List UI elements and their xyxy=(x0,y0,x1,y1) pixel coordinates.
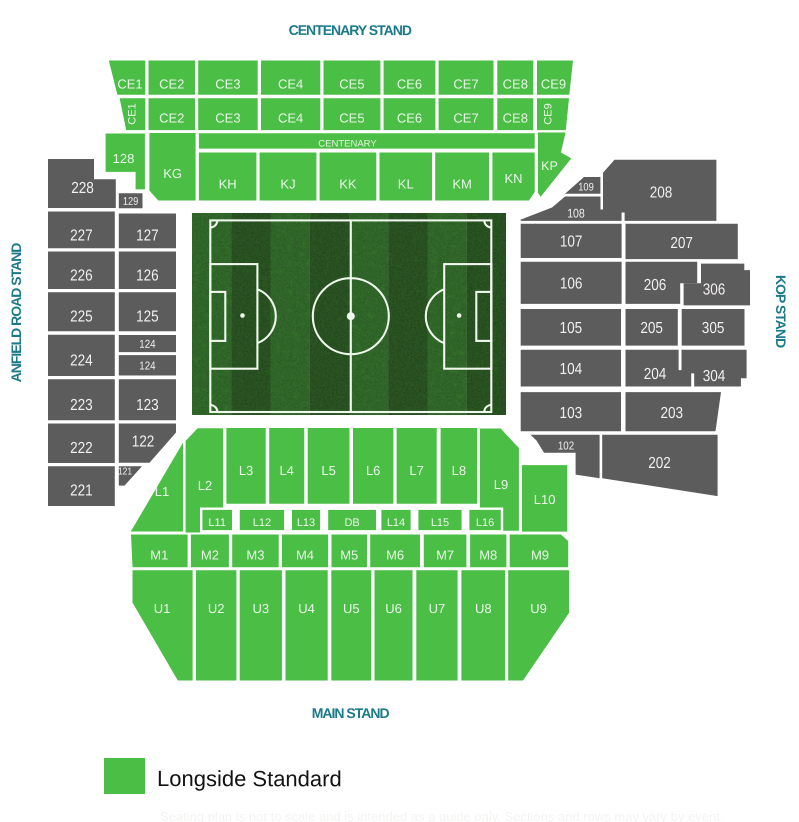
svg-text:M6: M6 xyxy=(386,547,404,562)
svg-text:106: 106 xyxy=(560,275,583,292)
svg-text:U5: U5 xyxy=(343,601,360,616)
svg-text:M2: M2 xyxy=(201,547,219,562)
svg-text:224: 224 xyxy=(70,352,93,369)
svg-text:Seating plan is not to scale a: Seating plan is not to scale and is inte… xyxy=(160,809,723,822)
svg-text:CE3: CE3 xyxy=(215,110,240,125)
svg-text:U7: U7 xyxy=(429,601,446,616)
svg-text:108: 108 xyxy=(567,206,585,220)
svg-text:L14: L14 xyxy=(387,517,405,529)
svg-text:129: 129 xyxy=(123,196,139,208)
svg-text:104: 104 xyxy=(560,361,583,378)
svg-text:124: 124 xyxy=(139,360,156,372)
svg-text:109: 109 xyxy=(578,181,594,193)
svg-text:306: 306 xyxy=(703,281,726,298)
svg-text:227: 227 xyxy=(70,227,93,244)
svg-text:223: 223 xyxy=(70,397,93,414)
svg-text:CE2: CE2 xyxy=(159,76,184,91)
svg-text:CE9: CE9 xyxy=(543,103,555,124)
svg-text:KM: KM xyxy=(452,176,472,191)
svg-text:126: 126 xyxy=(136,267,159,284)
svg-text:M5: M5 xyxy=(340,547,358,562)
svg-text:203: 203 xyxy=(660,405,683,422)
svg-text:KG: KG xyxy=(163,166,182,181)
svg-text:U8: U8 xyxy=(475,601,492,616)
svg-text:L11: L11 xyxy=(208,517,226,529)
svg-text:CE6: CE6 xyxy=(397,76,422,91)
svg-text:L13: L13 xyxy=(297,517,315,529)
svg-text:121: 121 xyxy=(118,466,132,477)
svg-text:CE4: CE4 xyxy=(278,110,303,125)
svg-text:127: 127 xyxy=(136,227,159,244)
svg-text:M4: M4 xyxy=(296,547,314,562)
svg-text:L9: L9 xyxy=(494,477,509,492)
svg-text:U1: U1 xyxy=(154,601,171,616)
svg-text:L16: L16 xyxy=(476,517,494,529)
svg-text:CE5: CE5 xyxy=(339,76,364,91)
svg-text:DB: DB xyxy=(344,517,359,529)
svg-text:KJ: KJ xyxy=(280,176,295,191)
svg-text:107: 107 xyxy=(560,233,583,250)
svg-text:MAIN STAND: MAIN STAND xyxy=(312,705,390,721)
svg-text:CE1: CE1 xyxy=(117,76,142,91)
svg-text:CE7: CE7 xyxy=(453,110,478,125)
svg-text:L1: L1 xyxy=(155,484,170,499)
svg-text:CE9: CE9 xyxy=(541,76,566,91)
svg-text:M8: M8 xyxy=(479,547,497,562)
svg-text:M7: M7 xyxy=(436,547,454,562)
svg-text:L12: L12 xyxy=(253,517,271,529)
svg-text:L10: L10 xyxy=(534,492,556,507)
svg-text:CE8: CE8 xyxy=(503,76,528,91)
svg-text:102: 102 xyxy=(558,440,574,452)
svg-text:KOP STAND: KOP STAND xyxy=(773,275,789,348)
svg-text:L5: L5 xyxy=(321,463,336,478)
svg-text:KN: KN xyxy=(504,171,522,186)
svg-text:226: 226 xyxy=(70,267,93,284)
svg-text:KL: KL xyxy=(398,176,414,191)
svg-text:206: 206 xyxy=(644,277,667,294)
svg-text:304: 304 xyxy=(703,368,726,385)
svg-text:L15: L15 xyxy=(431,517,449,529)
svg-text:221: 221 xyxy=(70,482,93,499)
svg-text:CE3: CE3 xyxy=(215,76,240,91)
svg-text:225: 225 xyxy=(70,308,93,325)
svg-text:207: 207 xyxy=(670,235,693,252)
svg-text:ANFIELD ROAD STAND: ANFIELD ROAD STAND xyxy=(8,243,24,383)
svg-text:103: 103 xyxy=(560,405,583,422)
svg-text:KH: KH xyxy=(219,176,237,191)
svg-text:CE2: CE2 xyxy=(159,110,184,125)
svg-text:KP: KP xyxy=(541,159,558,173)
svg-text:L6: L6 xyxy=(366,463,381,478)
svg-text:208: 208 xyxy=(650,184,673,201)
svg-text:205: 205 xyxy=(640,320,663,337)
svg-text:122: 122 xyxy=(132,433,155,450)
svg-text:222: 222 xyxy=(70,440,93,457)
svg-text:L4: L4 xyxy=(279,463,294,478)
svg-text:228: 228 xyxy=(71,180,94,197)
svg-text:U2: U2 xyxy=(208,601,225,616)
svg-text:128: 128 xyxy=(113,151,135,166)
svg-text:L3: L3 xyxy=(239,463,254,478)
svg-text:CE5: CE5 xyxy=(339,110,364,125)
svg-text:124: 124 xyxy=(139,339,156,351)
svg-text:L7: L7 xyxy=(409,463,424,478)
svg-text:105: 105 xyxy=(560,320,583,337)
svg-text:L2: L2 xyxy=(198,478,213,493)
svg-text:202: 202 xyxy=(648,455,671,472)
svg-text:Longside Standard: Longside Standard xyxy=(157,766,342,791)
svg-text:M9: M9 xyxy=(531,547,549,562)
svg-text:M3: M3 xyxy=(246,547,264,562)
svg-text:CE8: CE8 xyxy=(503,110,528,125)
svg-text:CENTENARY: CENTENARY xyxy=(318,138,377,149)
svg-text:204: 204 xyxy=(644,366,667,383)
svg-text:CE6: CE6 xyxy=(397,110,422,125)
svg-text:123: 123 xyxy=(136,397,159,414)
svg-text:U3: U3 xyxy=(252,601,269,616)
svg-text:CENTENARY STAND: CENTENARY STAND xyxy=(289,22,412,38)
svg-text:CE4: CE4 xyxy=(278,76,303,91)
svg-text:CE1: CE1 xyxy=(127,103,139,124)
svg-text:U4: U4 xyxy=(298,601,315,616)
svg-text:U6: U6 xyxy=(385,601,402,616)
svg-text:CE7: CE7 xyxy=(453,76,478,91)
svg-text:305: 305 xyxy=(702,320,725,337)
svg-text:L8: L8 xyxy=(452,463,467,478)
svg-text:125: 125 xyxy=(136,308,159,325)
svg-text:M1: M1 xyxy=(150,547,168,562)
svg-text:U9: U9 xyxy=(530,601,547,616)
svg-text:KK: KK xyxy=(339,176,357,191)
